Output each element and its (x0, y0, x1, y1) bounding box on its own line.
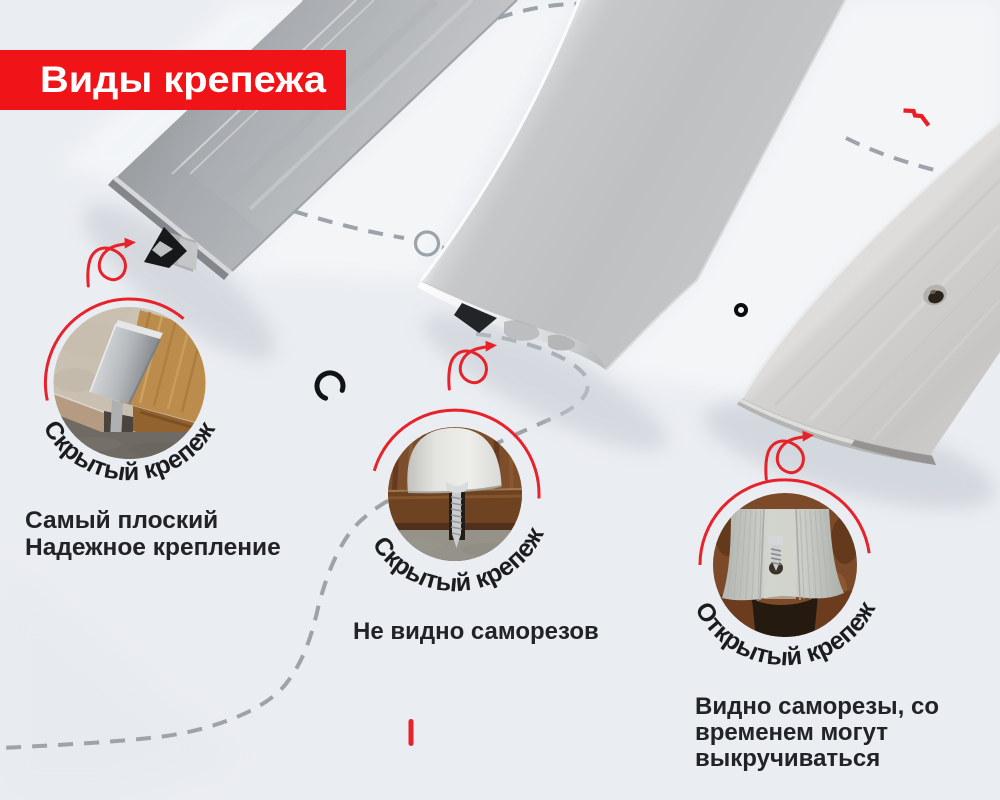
svg-text:Самый плоский: Самый плоский (25, 507, 218, 534)
svg-text:Надежное крепление: Надежное крепление (25, 534, 281, 561)
svg-text:Виды крепежа: Виды крепежа (40, 59, 326, 100)
svg-text:выкручиваться: выкручиваться (695, 745, 880, 772)
svg-text:временем могут: временем могут (695, 719, 888, 746)
svg-text:Видно саморезы, со: Видно саморезы, со (695, 693, 939, 720)
svg-text:Не видно саморезов: Не видно саморезов (353, 618, 599, 645)
